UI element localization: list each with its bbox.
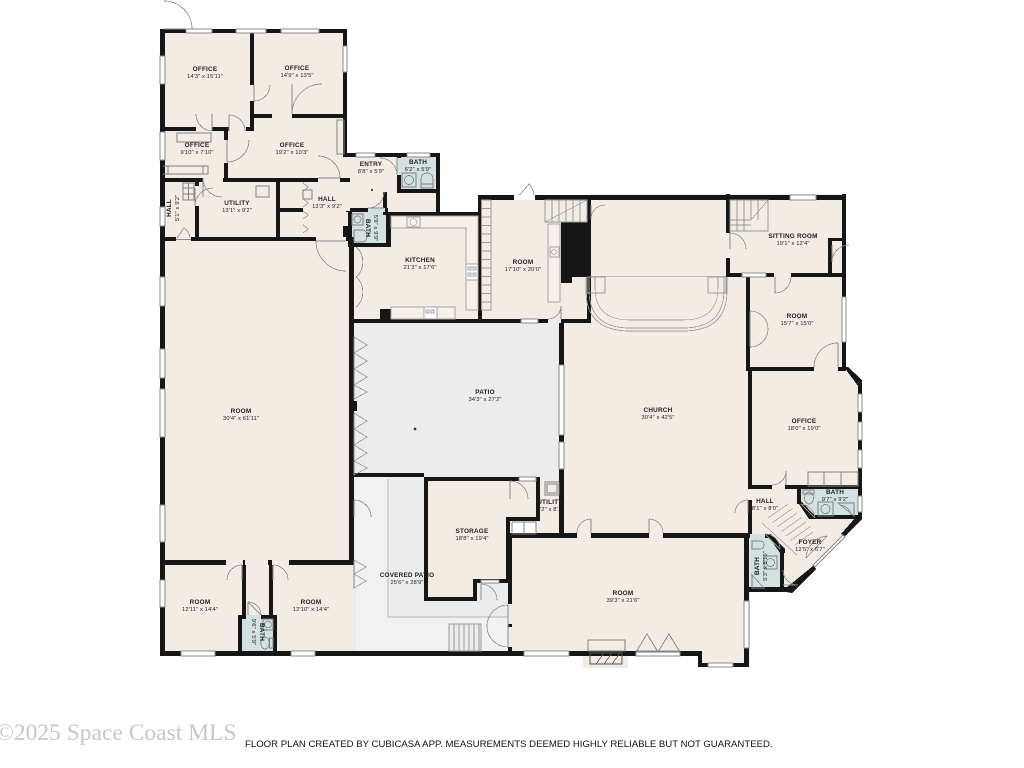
svg-text:30'4" x 42'5": 30'4" x 42'5" (641, 415, 674, 421)
svg-text:15'7" x 15'0": 15'7" x 15'0" (780, 321, 813, 327)
svg-text:34'3" x 27'2": 34'3" x 27'2" (468, 397, 501, 403)
svg-text:6'2" x 5'9": 6'2" x 5'9" (405, 167, 431, 173)
svg-text:ROOM: ROOM (513, 259, 534, 266)
svg-text:UTILITY: UTILITY (537, 499, 563, 506)
svg-text:12'11" x 14'4": 12'11" x 14'4" (182, 607, 218, 613)
svg-text:25'6" x 28'9": 25'6" x 28'9" (390, 580, 423, 586)
svg-text:HALL: HALL (318, 196, 336, 203)
svg-text:PATIO: PATIO (475, 389, 495, 396)
svg-text:©2025 Space Coast MLS: ©2025 Space Coast MLS (0, 720, 236, 746)
svg-text:ROOM: ROOM (231, 408, 252, 415)
svg-text:BATH: BATH (258, 623, 265, 641)
svg-text:5'1" x 9'2": 5'1" x 9'2" (175, 195, 181, 221)
svg-text:12'10" x 14'4": 12'10" x 14'4" (293, 607, 329, 613)
svg-text:BATH: BATH (409, 159, 427, 166)
svg-text:OFFICE: OFFICE (185, 142, 210, 149)
svg-text:ROOM: ROOM (787, 313, 808, 320)
svg-text:9'6" x 5'9": 9'6" x 5'9" (250, 619, 256, 645)
svg-text:ROOM: ROOM (190, 599, 211, 606)
svg-text:ROOM: ROOM (613, 590, 634, 597)
svg-text:17'10" x 20'0": 17'10" x 20'0" (505, 267, 541, 273)
svg-text:BATH: BATH (826, 489, 844, 496)
svg-text:18'8" x 19'4": 18'8" x 19'4" (455, 536, 488, 542)
svg-text:BATH: BATH (364, 219, 371, 237)
svg-text:FOYER: FOYER (798, 539, 821, 546)
svg-text:19'2" x 10'3": 19'2" x 10'3" (275, 150, 308, 156)
svg-text:OFFICE: OFFICE (285, 65, 310, 72)
svg-text:OFFICE: OFFICE (792, 418, 817, 425)
svg-text:ROOM: ROOM (301, 599, 322, 606)
svg-text:8'1" x 8'0": 8'1" x 8'0" (752, 506, 778, 512)
svg-text:CHURCH: CHURCH (644, 407, 673, 414)
svg-text:5'9" x 9'9": 5'9" x 9'9" (372, 215, 378, 241)
svg-text:21'3" x 17'6": 21'3" x 17'6" (403, 265, 436, 271)
svg-text:9'7" x 9'2": 9'7" x 9'2" (822, 497, 848, 503)
svg-text:9'10" x 7'10": 9'10" x 7'10" (180, 150, 213, 156)
svg-text:18'0" x 19'0": 18'0" x 19'0" (787, 426, 820, 432)
svg-text:13'3" x 9'2": 13'3" x 9'2" (312, 204, 342, 210)
svg-text:STORAGE: STORAGE (456, 528, 489, 535)
svg-text:OFFICE: OFFICE (280, 142, 305, 149)
svg-text:39'3" x 21'6": 39'3" x 21'6" (606, 598, 639, 604)
svg-text:OFFICE: OFFICE (193, 66, 218, 73)
svg-text:19'1" x 12'4": 19'1" x 12'4" (776, 241, 809, 247)
svg-text:SITTING ROOM: SITTING ROOM (768, 233, 817, 240)
svg-text:14'3" x 15'11": 14'3" x 15'11" (187, 74, 223, 80)
svg-text:13'1" x 9'2": 13'1" x 9'2" (222, 208, 252, 214)
svg-text:BATH: BATH (754, 557, 761, 575)
svg-text:KITCHEN: KITCHEN (405, 257, 435, 264)
svg-text:14'9" x 13'5": 14'9" x 13'5" (280, 73, 313, 79)
svg-text:ENTRY: ENTRY (360, 161, 383, 168)
svg-text:HALL: HALL (166, 199, 173, 217)
svg-text:7'2" x 8'1": 7'2" x 8'1" (537, 507, 563, 513)
svg-text:HALL: HALL (756, 498, 774, 505)
svg-text:30'4" x 61'11": 30'4" x 61'11" (223, 416, 259, 422)
svg-text:12'5" x 6'7": 12'5" x 6'7" (795, 547, 825, 553)
svg-text:COVERED PATIO: COVERED PATIO (380, 572, 435, 579)
svg-text:8'8" x 5'9": 8'8" x 5'9" (358, 169, 384, 175)
svg-text:UTILITY: UTILITY (224, 200, 250, 207)
svg-text:FLOOR PLAN CREATED BY CUBICASA: FLOOR PLAN CREATED BY CUBICASA APP. MEAS… (245, 739, 773, 750)
svg-text:5'3" x 8'10": 5'3" x 8'10" (763, 551, 769, 581)
